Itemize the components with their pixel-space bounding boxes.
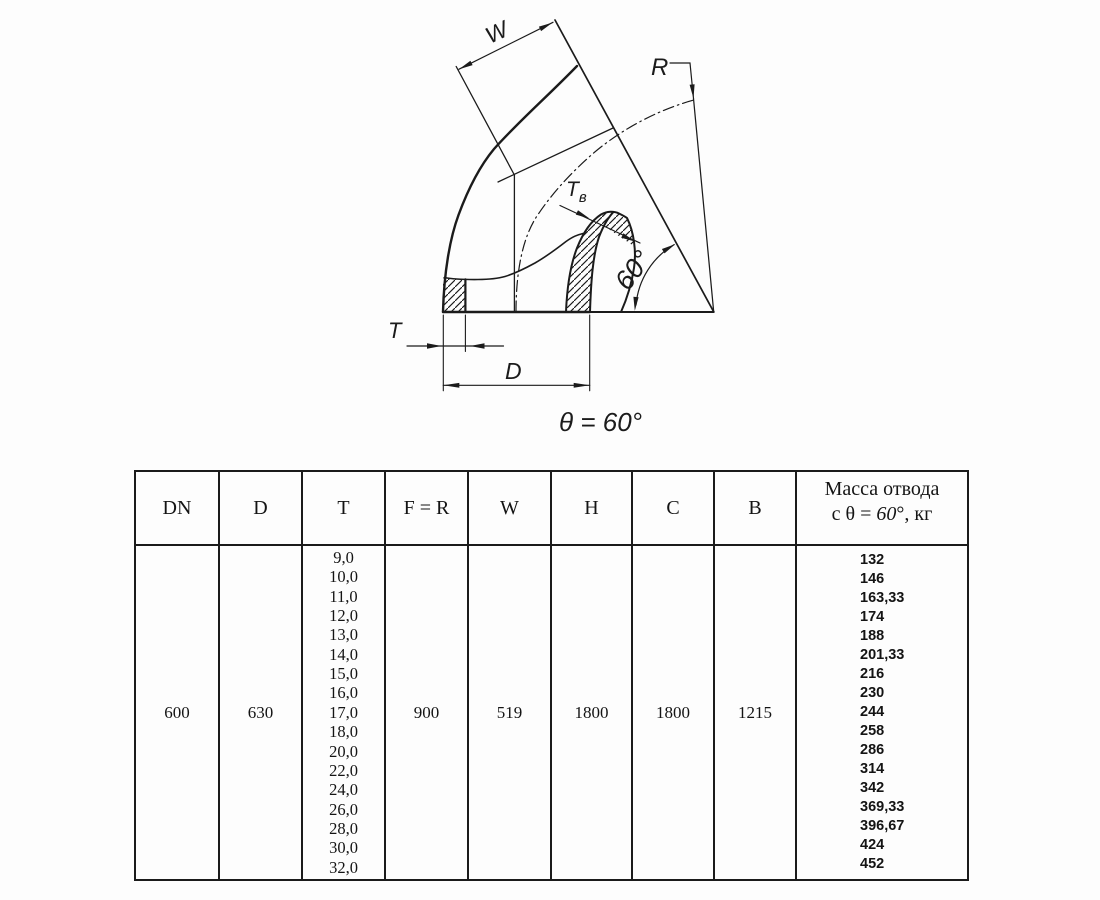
svg-text:D: D [505, 358, 522, 384]
svg-text:Tв: Tв [566, 178, 587, 206]
svg-text:60°: 60° [609, 245, 658, 296]
svg-text:θ = 60°: θ = 60° [559, 407, 642, 437]
svg-text:R: R [651, 54, 668, 81]
svg-text:W: W [481, 15, 514, 49]
svg-text:T: T [388, 318, 403, 343]
